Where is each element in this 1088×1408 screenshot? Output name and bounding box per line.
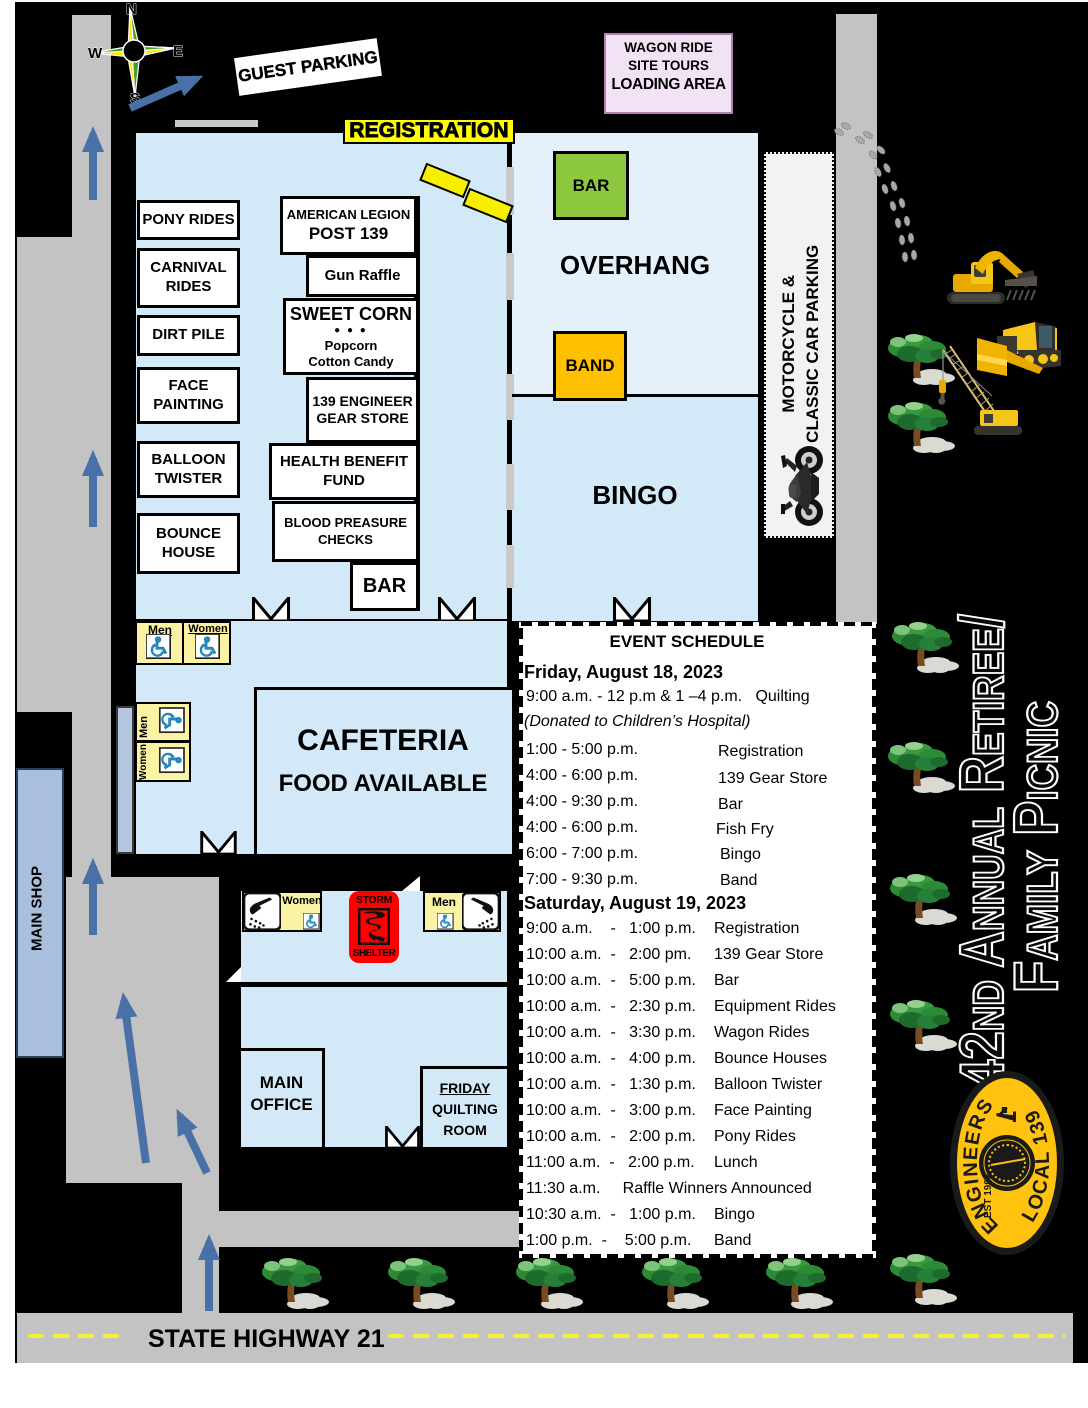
svg-text:N: N	[126, 1, 137, 18]
svg-text:E: E	[173, 43, 183, 60]
svg-text:S: S	[130, 90, 140, 106]
svg-text:EST 1902: EST 1902	[983, 1173, 994, 1218]
svg-text:Family Picnic: Family Picnic	[1002, 701, 1071, 993]
svg-text:W: W	[88, 45, 103, 62]
